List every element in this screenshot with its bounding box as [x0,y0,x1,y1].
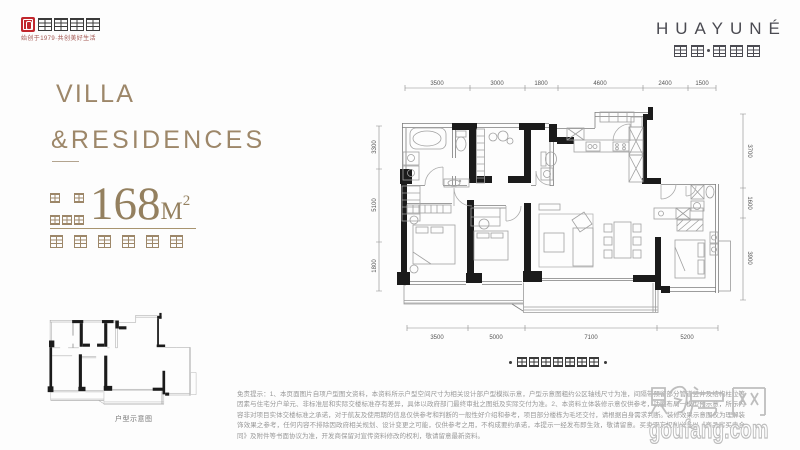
svg-text:3900: 3900 [746,251,752,265]
svg-text:3300: 3300 [372,140,378,154]
svg-text:5100: 5100 [372,198,378,212]
svg-text:5200: 5200 [680,335,694,341]
svg-text:3000: 3000 [490,81,504,87]
svg-text:3500: 3500 [430,81,444,87]
svg-text:3500: 3500 [430,335,444,341]
svg-text:1800: 1800 [534,81,548,87]
svg-text:1600: 1600 [746,196,752,210]
svg-text:4600: 4600 [593,81,607,87]
svg-text:7100: 7100 [584,335,598,341]
svg-text:5000: 5000 [489,335,503,341]
svg-text:1500: 1500 [695,81,709,87]
svg-text:3700: 3700 [746,144,752,158]
svg-text:1800: 1800 [372,259,378,273]
svg-text:2400: 2400 [658,81,672,87]
